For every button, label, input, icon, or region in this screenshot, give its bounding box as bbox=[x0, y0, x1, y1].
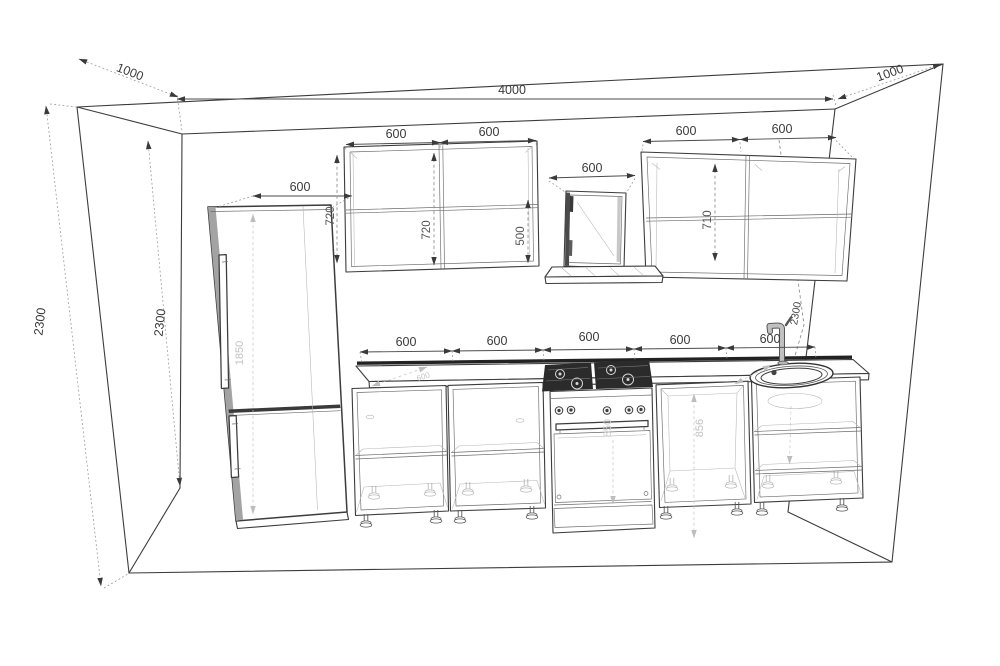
dim-base3: 600 bbox=[579, 330, 600, 344]
dim-wall-cab4: 600 bbox=[772, 122, 793, 136]
dim-wall-height-a: 720 bbox=[325, 206, 337, 225]
drawing-canvas: 4000 1000 1000 2300 2300 2300 600 600 60… bbox=[0, 0, 1000, 666]
hob-right-grate bbox=[594, 360, 653, 389]
faucet-base bbox=[778, 361, 788, 365]
dim-wall-height-c: 710 bbox=[702, 210, 714, 229]
leg bbox=[836, 498, 848, 511]
hob-left-grate bbox=[542, 363, 593, 392]
floor-left-edge bbox=[129, 488, 180, 573]
ceiling-left-edge bbox=[77, 107, 182, 134]
hood-shelf-top bbox=[545, 266, 663, 277]
hood-shelf bbox=[545, 266, 663, 284]
leg bbox=[360, 514, 372, 527]
dim-line-base3 bbox=[543, 349, 634, 350]
left-wall-front-edge bbox=[77, 107, 129, 573]
dim-fridge-height: 1850 bbox=[234, 341, 246, 365]
dim-base5: 600 bbox=[760, 332, 781, 346]
dim-wall-cab3: 600 bbox=[676, 124, 697, 138]
stove bbox=[542, 360, 655, 533]
leg bbox=[756, 502, 768, 515]
dim-height-right: 2300 bbox=[788, 301, 804, 326]
dim-base-height: 856 bbox=[694, 419, 706, 437]
back-wall-top bbox=[182, 109, 835, 134]
kitchen-elevation-drawing: 4000 1000 1000 2300 2300 2300 600 600 60… bbox=[0, 0, 1000, 666]
dim-ext-height-outer bbox=[50, 104, 128, 588]
leg bbox=[454, 510, 466, 523]
dim-wall-height-b: 720 bbox=[421, 220, 433, 239]
hood-cabinet bbox=[564, 191, 626, 268]
fridge-upper-door-handle bbox=[219, 255, 229, 389]
dim-base2: 600 bbox=[487, 334, 508, 348]
dim-line-wall-cab3 bbox=[643, 140, 740, 142]
floor-front-edge bbox=[129, 562, 892, 573]
hood-hinge-bottom bbox=[569, 240, 573, 256]
dim-wall-cab1: 600 bbox=[386, 127, 407, 141]
dim-line-base2 bbox=[452, 350, 543, 351]
dim-base1: 600 bbox=[396, 335, 417, 349]
dim-room-width: 4000 bbox=[498, 83, 526, 97]
right-wall-front-edge bbox=[892, 64, 943, 562]
dim-line-base5 bbox=[726, 347, 815, 348]
sink-drain bbox=[771, 370, 776, 375]
dim-height-inner: 2300 bbox=[152, 308, 169, 337]
dim-line-base1 bbox=[360, 351, 452, 352]
dim-depth-left: 1000 bbox=[115, 60, 146, 83]
wall-cabinet-right-pair bbox=[641, 152, 856, 281]
wall-cabinet-left-body bbox=[344, 141, 539, 272]
dim-line-hood-width bbox=[549, 176, 635, 179]
hood-shelf-front bbox=[545, 276, 663, 284]
dim-height-outer: 2300 bbox=[31, 307, 48, 336]
dim-stove-height: 850 bbox=[602, 419, 614, 437]
dim-line-height-outer bbox=[46, 106, 101, 586]
back-wall-left bbox=[180, 134, 182, 488]
floor-right-edge bbox=[788, 512, 892, 562]
fridge-lower-door-handle bbox=[229, 416, 239, 478]
dim-ext-hood-width bbox=[549, 179, 635, 193]
wall-cabinet-left-pair bbox=[344, 141, 539, 272]
hood-hinge-top bbox=[570, 196, 574, 212]
dim-wall-cab2: 600 bbox=[479, 125, 500, 139]
dim-fridge-width: 600 bbox=[290, 180, 311, 194]
dim-hood-width: 600 bbox=[582, 161, 603, 175]
dim-base4: 600 bbox=[670, 333, 691, 347]
leg bbox=[660, 506, 672, 519]
dim-line-base4 bbox=[634, 348, 726, 349]
fridge bbox=[208, 205, 349, 529]
dim-hood-height: 500 bbox=[515, 226, 527, 245]
dim-line-wall-cab4 bbox=[740, 138, 836, 140]
